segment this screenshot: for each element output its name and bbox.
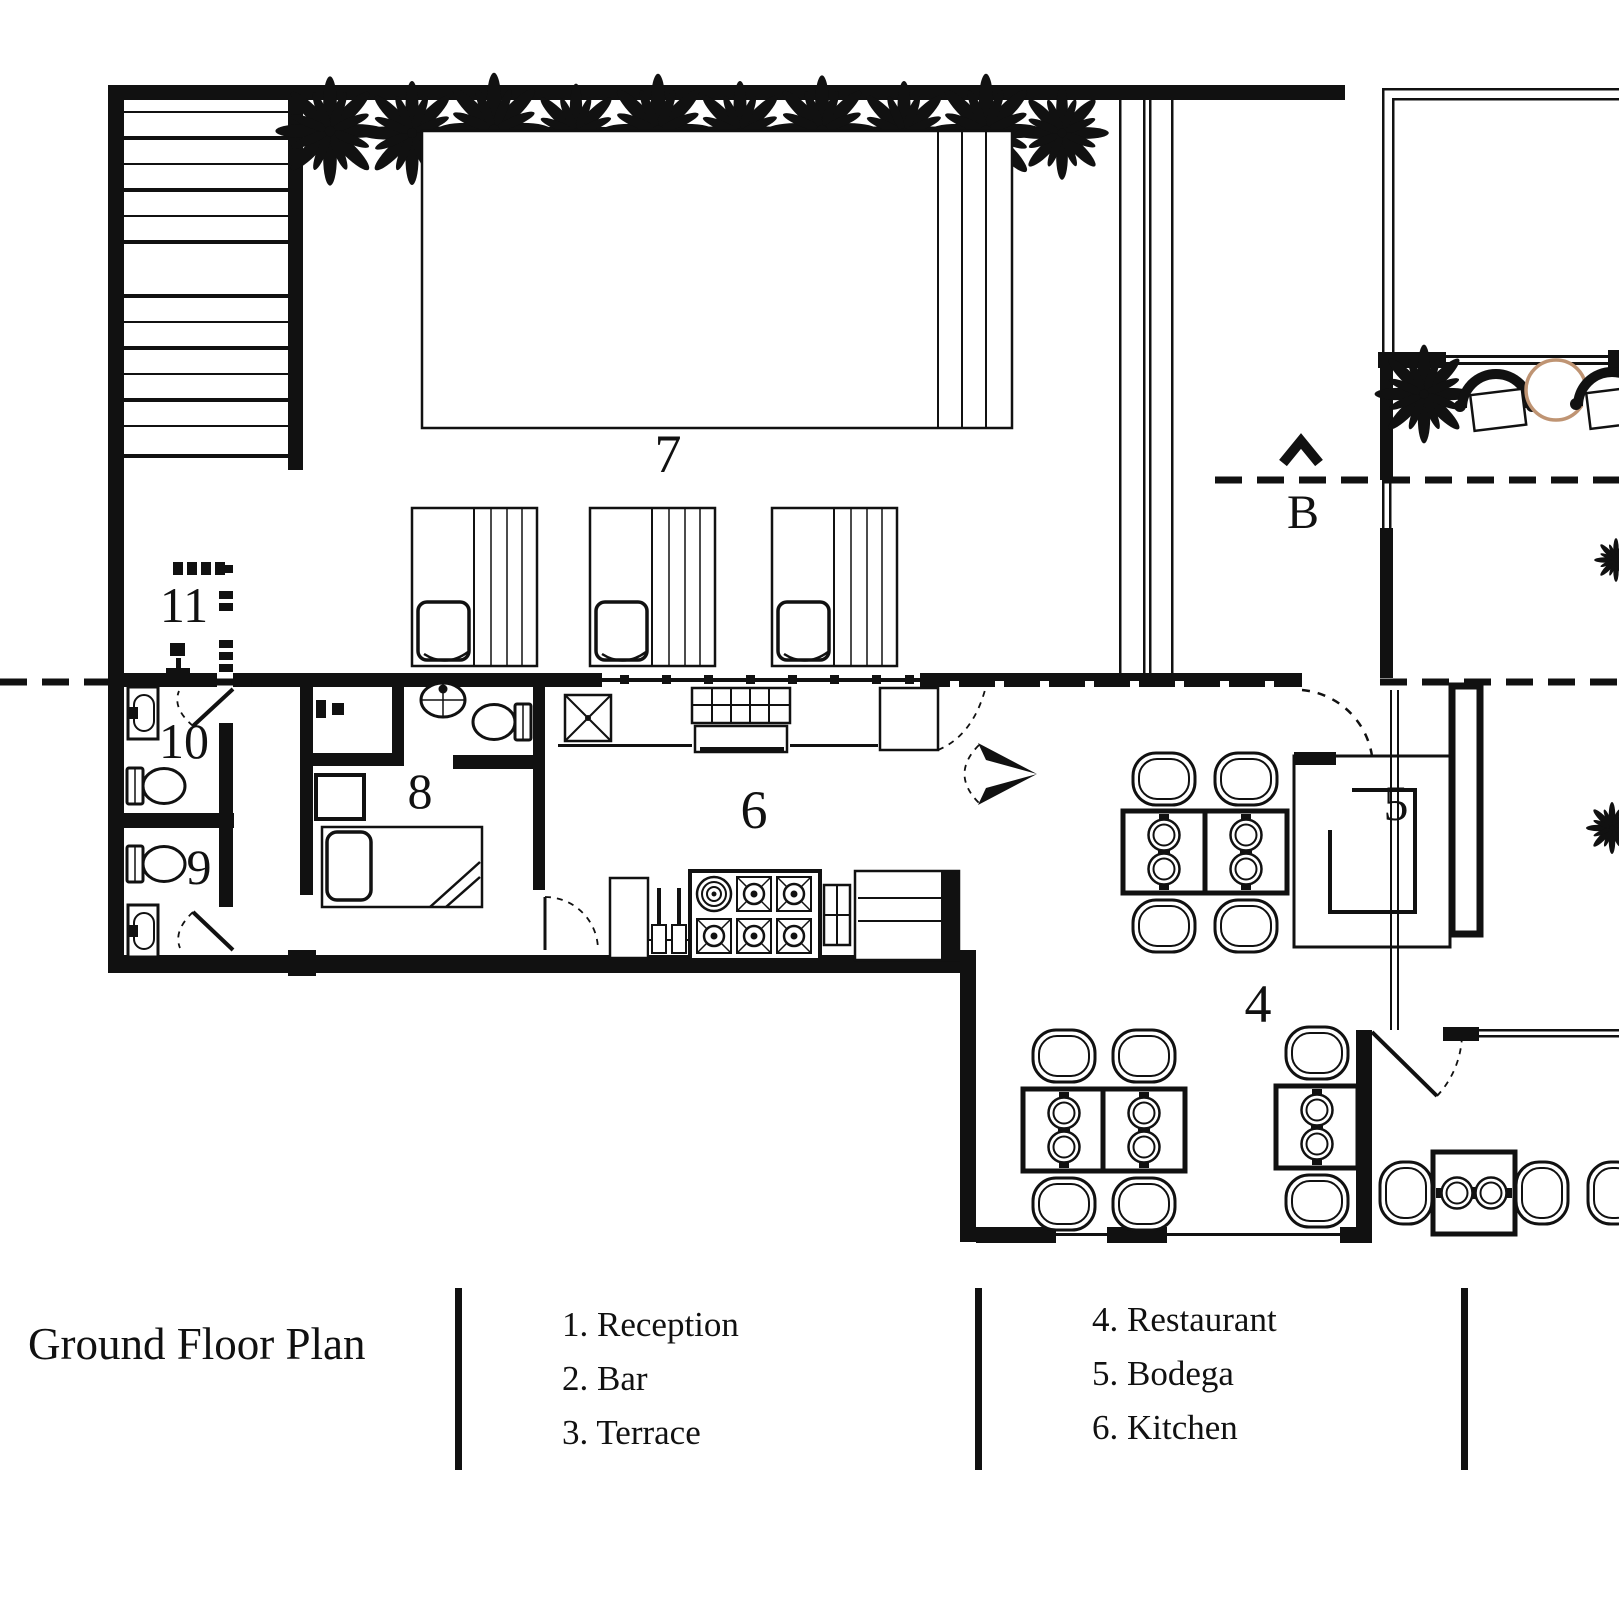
room-label-9: 9 <box>187 839 212 895</box>
legend-divider <box>455 1288 462 1470</box>
prep-sink-icon <box>565 695 611 741</box>
room-label-10: 10 <box>159 713 209 769</box>
lounge-bed-icon <box>412 508 537 666</box>
dining-table-icon <box>1103 1089 1185 1171</box>
lounge-bed-icon <box>772 508 897 666</box>
dining-chair-icon <box>1133 900 1195 952</box>
kitchen-pass-door <box>880 688 985 750</box>
dining-chair-icon <box>1215 900 1277 952</box>
legend-column-2: 4. Restaurant 5. Bodega 6. Kitchen <box>1092 1293 1277 1455</box>
section-label-b: B <box>1287 486 1319 539</box>
dining-chair-icon <box>1588 1162 1619 1224</box>
page-title: Ground Floor Plan <box>28 1318 428 1370</box>
dining-chair-icon <box>1380 1162 1432 1224</box>
wall-sink-icon <box>127 905 158 957</box>
room8-bedroom <box>300 673 598 950</box>
room-label-6: 6 <box>741 780 768 840</box>
dining-chair-icon <box>1113 1178 1175 1230</box>
terrace-top-right <box>1375 88 1619 854</box>
dining-chair-icon <box>1133 753 1195 805</box>
pedestal-sink-icon <box>421 683 465 717</box>
counter-shelves <box>855 871 959 960</box>
oven-icon <box>824 885 850 945</box>
palm-tree-icon <box>1015 86 1109 180</box>
fern-plant-icon <box>1586 802 1619 854</box>
legend-item-reception: 1. Reception <box>562 1298 739 1352</box>
room7-lounge-beds <box>412 508 897 666</box>
dining-chair-icon <box>1033 1030 1095 1082</box>
legend-item-restaurant: 4. Restaurant <box>1092 1293 1277 1347</box>
restaurant <box>960 743 1619 1243</box>
dining-chair-icon <box>1215 753 1277 805</box>
legend-divider <box>1461 1288 1468 1470</box>
dining-chair-icon <box>1033 1178 1095 1230</box>
legend-divider <box>975 1288 982 1470</box>
kitchen <box>558 688 985 960</box>
stairs-icon <box>124 112 288 456</box>
lounge-bed-icon <box>590 508 715 666</box>
dining-chair-icon <box>1286 1027 1348 1079</box>
toilet-icon <box>127 768 185 804</box>
fern-plant-icon <box>1594 538 1619 582</box>
stove-icon <box>690 871 820 960</box>
cabinet <box>610 878 648 958</box>
double-swing-door <box>965 743 1038 805</box>
legend-item-kitchen: 6. Kitchen <box>1092 1401 1277 1455</box>
dining-chair-icon <box>1113 1030 1175 1082</box>
section-arrow-icon <box>1283 441 1319 463</box>
room-label-8: 8 <box>408 763 433 819</box>
toilet-icon <box>473 704 531 740</box>
toilet-icon <box>127 846 185 882</box>
dining-chair-icon <box>1286 1175 1348 1227</box>
bed-icon <box>322 827 482 907</box>
room-label-11: 11 <box>160 577 208 633</box>
room-label-4: 4 <box>1245 974 1272 1034</box>
reception-partition-lines <box>1119 100 1174 673</box>
door-swing-icon <box>545 897 598 950</box>
door-swing-icon <box>178 912 233 950</box>
dining-table-icon <box>1023 1089 1105 1171</box>
dining-chair-icon <box>1516 1162 1568 1224</box>
dining-table-icon <box>1276 1086 1358 1168</box>
legend-item-bodega: 5. Bodega <box>1092 1347 1277 1401</box>
door-swing-icon <box>1372 1032 1462 1096</box>
dining-table-icon <box>1433 1152 1515 1234</box>
deck-area <box>422 131 1012 428</box>
room-label-5: 5 <box>1384 775 1409 831</box>
legend-column-1: 1. Reception 2. Bar 3. Terrace <box>562 1298 739 1460</box>
fern-plant-icon <box>1375 345 1474 444</box>
legend-item-bar: 2. Bar <box>562 1352 739 1406</box>
legend-item-terrace: 3. Terrace <box>562 1406 739 1460</box>
pass-through-shelf <box>692 688 790 752</box>
room-label-7: 7 <box>655 424 682 484</box>
dining-table-icon <box>1123 811 1205 893</box>
dining-table-icon <box>1205 811 1287 893</box>
wall-sink-icon <box>127 687 158 739</box>
fryer <box>648 888 690 956</box>
side-table <box>316 775 364 819</box>
legend: Ground Floor Plan 1. Reception 2. Bar 3.… <box>0 1280 1619 1500</box>
bodega <box>1294 686 1480 1030</box>
door-swing-icon <box>1302 690 1372 756</box>
middle-wall-band <box>108 673 1302 687</box>
floor-plan-page: 7 11 10 9 8 6 5 4 B Ground Floor Plan 1.… <box>0 0 1619 1619</box>
